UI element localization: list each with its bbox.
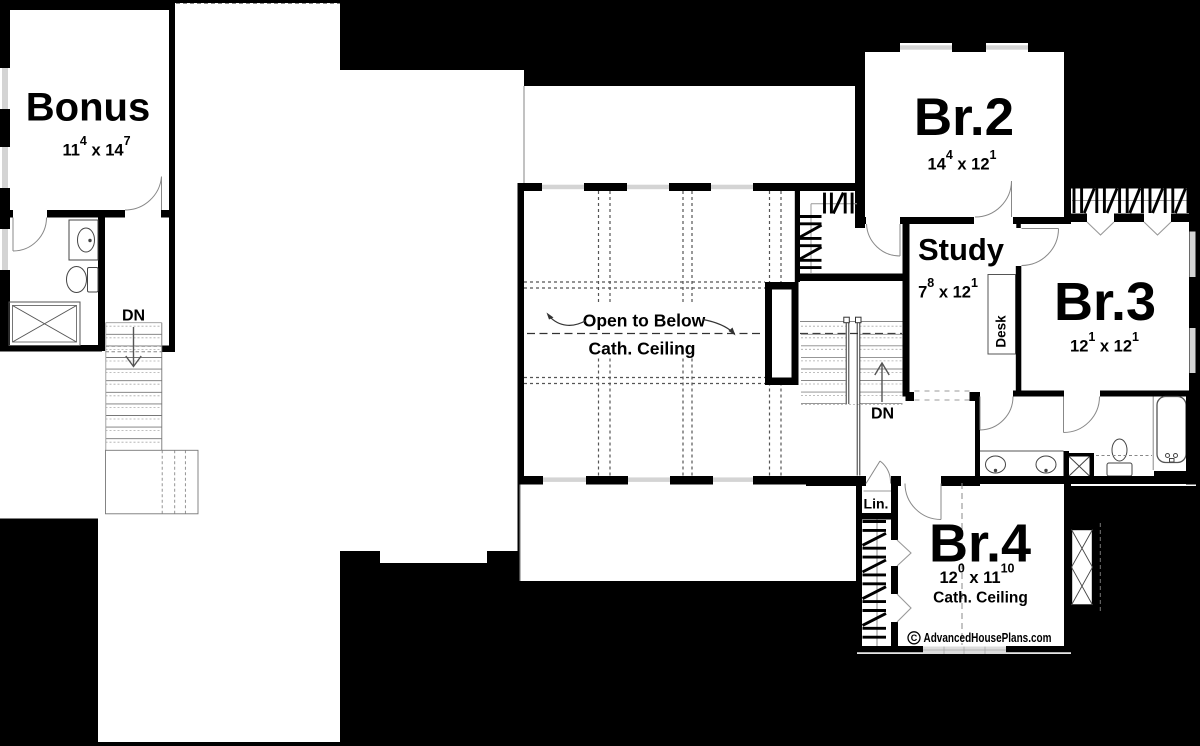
svg-text:Br.4: Br.4 — [929, 514, 1031, 574]
svg-text:DN: DN — [122, 308, 145, 325]
svg-text:AdvancedHousePlans.com: AdvancedHousePlans.com — [924, 631, 1052, 645]
svg-text:Study: Study — [918, 232, 1005, 267]
svg-text:Cath. Ceiling: Cath. Ceiling — [933, 590, 1028, 607]
svg-text:Cath. Ceiling: Cath. Ceiling — [589, 339, 696, 359]
svg-text:Open to Below: Open to Below — [583, 311, 706, 331]
svg-text:Br.3: Br.3 — [1054, 272, 1156, 332]
svg-text:Br.2: Br.2 — [914, 88, 1014, 147]
svg-text:DN: DN — [871, 406, 894, 423]
svg-text:C: C — [911, 633, 918, 643]
svg-text:Desk: Desk — [994, 315, 1009, 348]
svg-text:Lin.: Lin. — [864, 496, 889, 512]
svg-text:Bonus: Bonus — [26, 86, 150, 130]
